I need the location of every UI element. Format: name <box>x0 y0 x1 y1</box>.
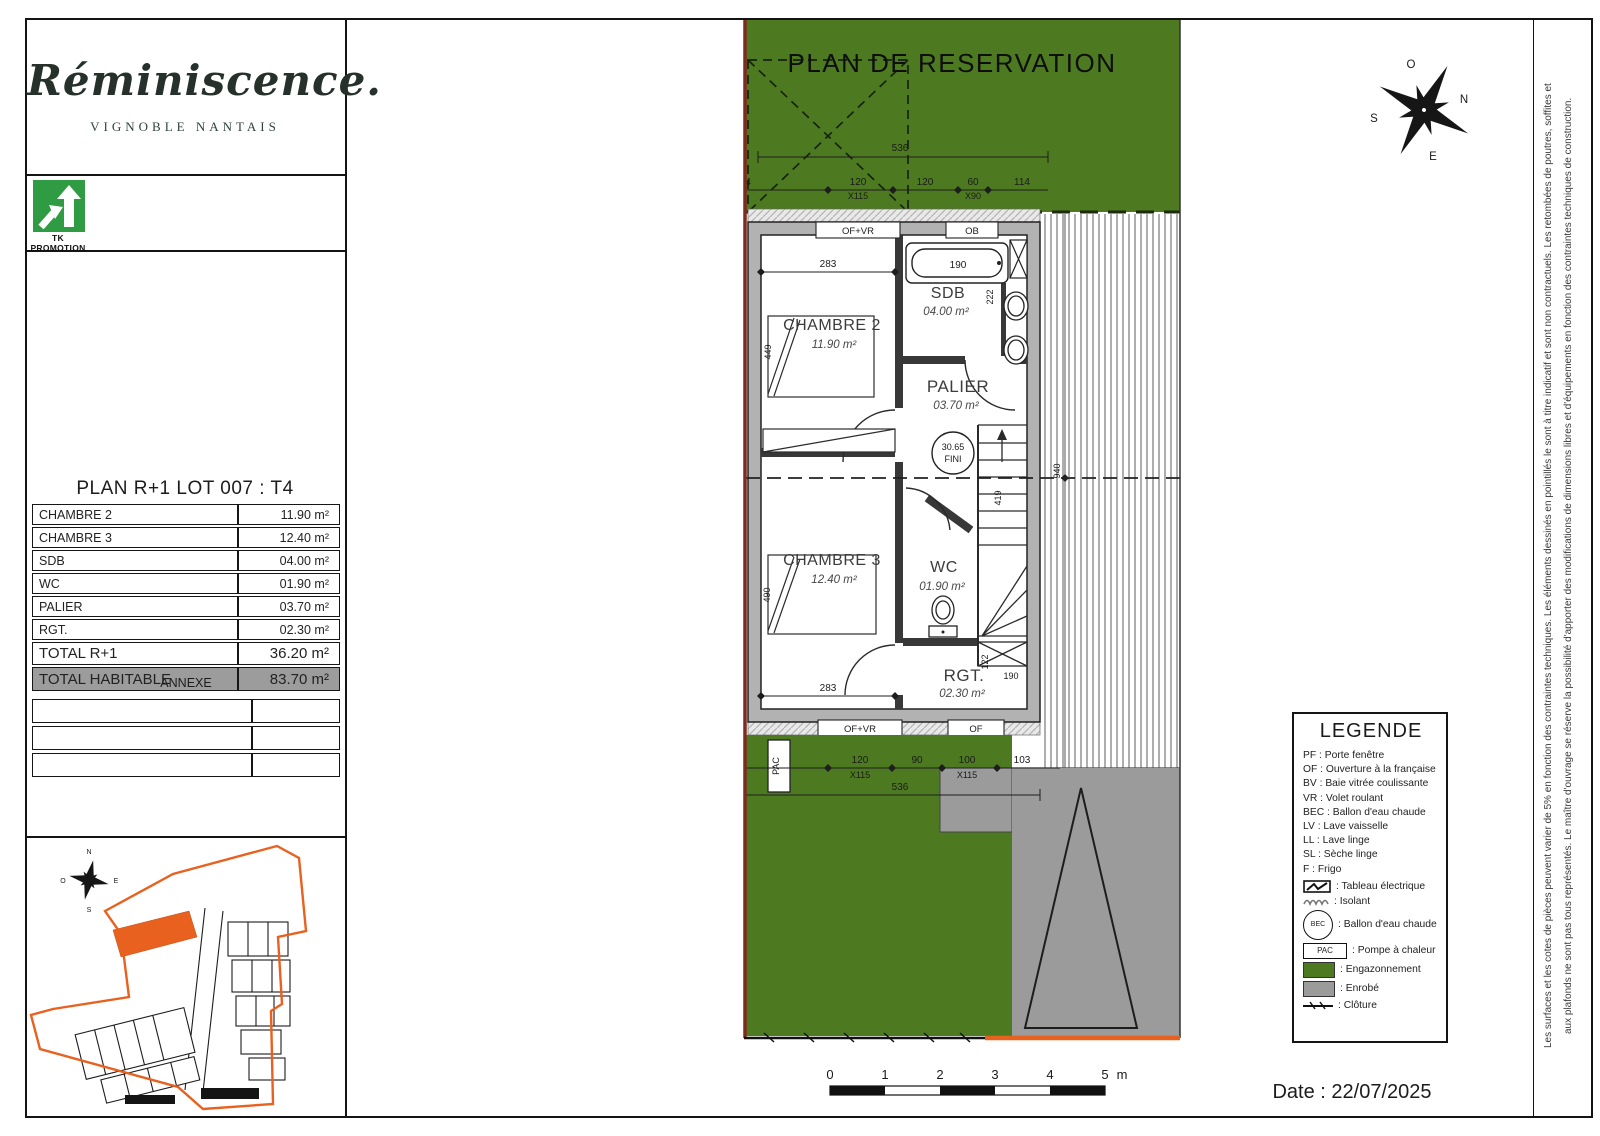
scale-bar: 0 1 2 3 4 5 m <box>826 1067 1127 1095</box>
dim-bottom-w3b: X115 <box>957 770 977 780</box>
room-label: CHAMBRE 3 <box>32 527 238 548</box>
garden-bottom <box>744 735 1180 1036</box>
dim-chambre2-width: 283 <box>820 259 837 270</box>
dim-rgt-width: 190 <box>1003 671 1018 681</box>
legend-abbr-item: LL : Lave linge <box>1303 834 1439 848</box>
legend-item: : Engazonnement <box>1303 962 1439 978</box>
partitions <box>761 235 1027 709</box>
site-compass-icon: N O E S <box>60 849 118 914</box>
compass-s: S <box>87 907 92 914</box>
plan-sheet: Réminiscence. VIGNOBLE NANTAIS TK PROMOT… <box>0 0 1600 1136</box>
dim-sdb-height: 222 <box>985 289 995 304</box>
room-name-chambre3: CHAMBRE 3 <box>783 552 881 569</box>
compass-n: N <box>86 849 91 856</box>
electrical-panel-icon <box>1303 880 1331 893</box>
compass-n: N <box>1460 94 1468 106</box>
annexe-table <box>32 696 340 780</box>
area-table-title: PLAN R+1 LOT 007 : T4 <box>30 478 340 500</box>
room-name-rgt: RGT. <box>944 666 985 685</box>
date-label: Date : 22/07/2025 <box>1272 1081 1431 1103</box>
room-area-rgt: 02.30 m² <box>939 688 986 700</box>
legend-abbr-item: F : Frigo <box>1303 863 1439 877</box>
room-label: RGT. <box>32 619 238 640</box>
table-row: CHAMBRE 211.90 m² <box>32 504 340 525</box>
legend-box: LEGENDE PF : Porte fenêtre OF : Ouvertur… <box>1292 712 1448 1043</box>
dim-bottom-overall: 536 <box>892 782 909 793</box>
room-area: 11.90 m² <box>238 504 340 525</box>
dim-top-w1: 120 <box>850 177 867 188</box>
dim-top-w1b: X115 <box>848 191 868 201</box>
legend-abbr-item: LV : Lave vaisselle <box>1303 820 1439 834</box>
highlighted-building <box>113 911 197 957</box>
dim-stairs: 419 <box>993 490 1003 505</box>
wardrobe <box>763 429 895 452</box>
dim-bathtub: 190 <box>950 260 967 271</box>
compass-e: E <box>1429 151 1437 163</box>
brand-logo: Réminiscence. VIGNOBLE NANTAIS <box>27 22 343 172</box>
table-row <box>32 699 340 723</box>
table-row: WC01.90 m² <box>32 573 340 594</box>
compass-rose-icon: O N S E <box>1356 42 1491 177</box>
room-area: 02.30 m² <box>238 619 340 640</box>
legend-item: BEC : Ballon d'eau chaude <box>1303 910 1439 940</box>
water-heater-icon: BEC <box>1303 910 1333 940</box>
window-labels: OF+VR OB OF+VR OF <box>816 222 1004 736</box>
table-row: CHAMBRE 312.40 m² <box>32 527 340 548</box>
legend-abbr-item: BEC : Ballon d'eau chaude <box>1303 806 1439 820</box>
compass-e: E <box>114 878 119 885</box>
room-area: 01.90 m² <box>238 573 340 594</box>
dim-top-w2: 120 <box>917 177 934 188</box>
room-name-chambre2: CHAMBRE 2 <box>783 317 881 334</box>
opening-label-top-right: OB <box>965 226 979 237</box>
logo-divider <box>25 174 345 176</box>
tk-promotion-logo-icon <box>33 180 85 232</box>
room-area-palier: 03.70 m² <box>933 400 980 412</box>
sink-icons <box>1004 292 1028 364</box>
brand-subtitle: VIGNOBLE NANTAIS <box>27 119 343 135</box>
compass-o: O <box>1407 59 1416 71</box>
site-plan-map: N O E S <box>27 838 343 1114</box>
pac-label: PAC <box>771 757 781 775</box>
dim-bottom-w2: 90 <box>911 755 923 766</box>
legend-title: LEGENDE <box>1303 720 1439 743</box>
table-row <box>32 753 340 777</box>
level-suffix: FINI <box>945 454 962 464</box>
toilet-icon <box>929 596 957 637</box>
brand-name: Réminiscence. <box>27 56 343 105</box>
level-value: 30.65 <box>942 442 965 452</box>
closet-icon <box>1010 240 1027 278</box>
compass-o: O <box>60 878 66 885</box>
legend-abbr-item: OF : Ouverture à la française <box>1303 763 1439 777</box>
legend-item: : Enrobé <box>1303 981 1439 997</box>
table-row: PALIER03.70 m² <box>32 596 340 617</box>
dim-right-height: 940 <box>1052 463 1062 478</box>
grass-swatch <box>1303 962 1335 978</box>
disclaimer-line-2: aux plafonds ne sont pas tous représenté… <box>1563 22 1575 1110</box>
dim-bottom-w1b: X115 <box>850 770 870 780</box>
room-area-sdb: 04.00 m² <box>923 306 970 318</box>
legend-abbreviations: PF : Porte fenêtre OF : Ouverture à la f… <box>1303 749 1439 877</box>
compass-s: S <box>1370 113 1378 125</box>
dim-top-w3b: X90 <box>965 191 981 201</box>
scale-tick: 3 <box>991 1067 998 1082</box>
promoter-name: TK PROMOTION <box>27 233 89 253</box>
legend-abbr-item: PF : Porte fenêtre <box>1303 749 1439 763</box>
legend-abbr-item: VR : Volet roulant <box>1303 792 1439 806</box>
total-r1-row: TOTAL R+136.20 m² <box>32 642 340 665</box>
dim-top-overall: 536 <box>892 143 909 154</box>
dim-bottom-w3: 100 <box>959 755 976 766</box>
legend-item: : Tableau électrique <box>1303 880 1439 893</box>
page-title: PLAN DE RESERVATION <box>787 48 1116 78</box>
legend-item: : Clôture <box>1303 1000 1439 1011</box>
dim-top-w4: 114 <box>1014 177 1030 188</box>
scale-tick: 0 <box>826 1067 833 1082</box>
table-row: RGT.02.30 m² <box>32 619 340 640</box>
dim-chambre3-height: 490 <box>762 587 772 602</box>
room-name-palier: PALIER <box>927 377 989 396</box>
asphalt-swatch <box>1303 981 1335 997</box>
legend-item: : Isolant <box>1303 896 1439 907</box>
room-labels: CHAMBRE 2 11.90 m² SDB 04.00 m² PALIER 0… <box>783 285 989 700</box>
annexe-heading: ANNEXE <box>32 676 340 690</box>
opening-label-top-left: OF+VR <box>842 226 874 237</box>
table-row <box>32 726 340 750</box>
dim-chambre2-height: 449 <box>763 344 773 359</box>
dim-bottom-w1: 120 <box>852 755 869 766</box>
room-label: WC <box>32 573 238 594</box>
room-label: CHAMBRE 2 <box>32 504 238 525</box>
area-table: CHAMBRE 211.90 m² CHAMBRE 312.40 m² SDB0… <box>32 502 340 693</box>
opening-label-bottom-left: OF+VR <box>844 724 876 735</box>
legend-abbr-item: BV : Baie vitrée coulissante <box>1303 777 1439 791</box>
room-name-wc: WC <box>930 559 958 576</box>
level-marker: 30.65 FINI <box>932 432 974 474</box>
total-value: 36.20 m² <box>238 642 340 665</box>
scale-tick: 2 <box>936 1067 943 1082</box>
room-area: 12.40 m² <box>238 527 340 548</box>
heat-pump-icon: PAC <box>1303 943 1347 959</box>
room-label: PALIER <box>32 596 238 617</box>
opening-label-bottom-right: OF <box>969 724 982 735</box>
room-label: SDB <box>32 550 238 571</box>
room-area-chambre2: 11.90 m² <box>812 339 858 351</box>
scale-unit: m <box>1117 1067 1128 1082</box>
table-row: SDB04.00 m² <box>32 550 340 571</box>
disclaimer-line-1: Les surfaces et les cotes de pièces peuv… <box>1543 22 1555 1110</box>
room-area-chambre3: 12.40 m² <box>811 574 858 586</box>
dim-bottom-w4: 103 <box>1014 755 1031 766</box>
total-label: TOTAL R+1 <box>32 642 238 665</box>
scale-tick: 5 <box>1101 1067 1108 1082</box>
dim-top-w3: 60 <box>967 177 979 188</box>
dim-chambre3-width: 283 <box>820 683 837 694</box>
room-area: 04.00 m² <box>238 550 340 571</box>
dim-rgt-height: 122 <box>980 654 990 669</box>
insulation-icon <box>1303 896 1329 906</box>
stairs <box>978 425 1027 666</box>
room-name-sdb: SDB <box>931 285 965 302</box>
room-area-wc: 01.90 m² <box>919 581 966 593</box>
scale-tick: 4 <box>1046 1067 1053 1082</box>
fence-icon <box>1303 1001 1333 1010</box>
pac-unit: PAC <box>768 740 790 792</box>
scale-tick: 1 <box>881 1067 888 1082</box>
room-area: 03.70 m² <box>238 596 340 617</box>
legend-abbr-item: SL : Sèche linge <box>1303 848 1439 862</box>
disclaimer-divider <box>1533 18 1534 1116</box>
legend-item: PAC : Pompe à chaleur <box>1303 943 1439 959</box>
